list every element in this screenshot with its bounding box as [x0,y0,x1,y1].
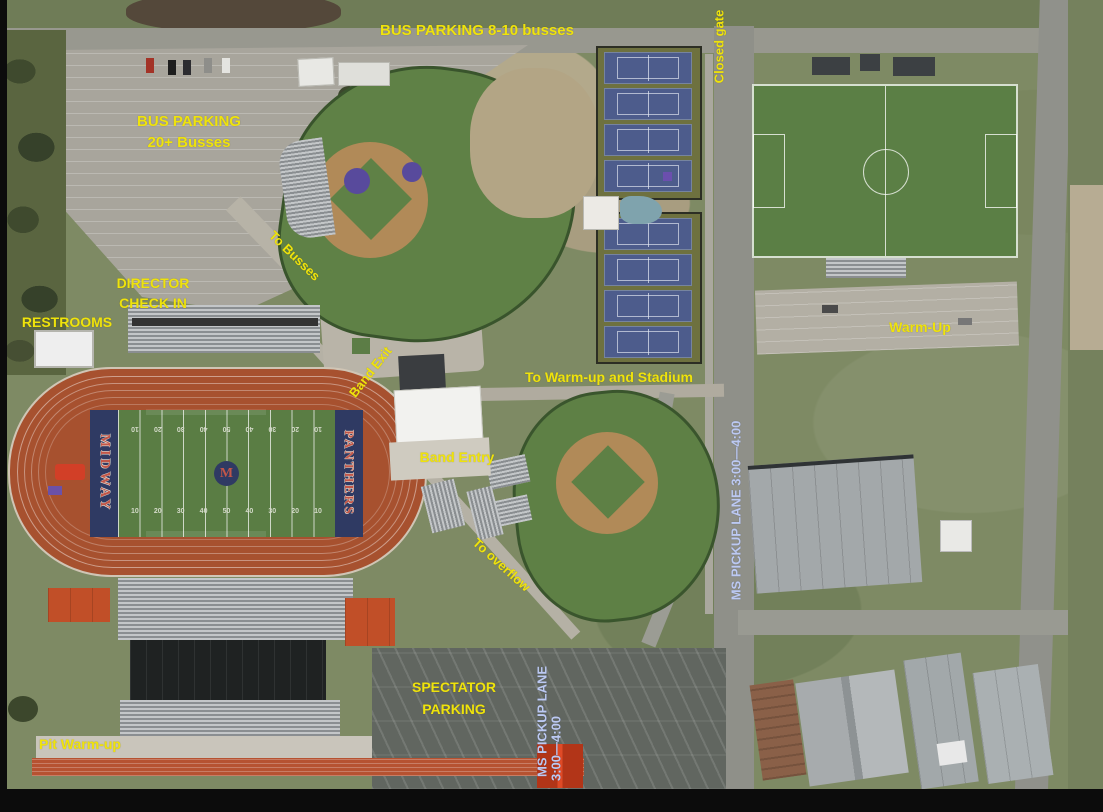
tennis-court [604,124,692,156]
dirt-patch-east [470,68,600,218]
photo-edge-left [0,0,7,812]
tennis-court [604,254,692,286]
endzone-text-visitor: PANTHERS [341,413,357,533]
label-bus-parking-lot-line1: BUS PARKING [108,111,270,132]
parked-car [183,60,191,75]
tennis-court [604,326,692,358]
tennis-court [604,52,692,84]
campus-aerial-map: MIDWAY PANTHERS 102030405040302010 10203… [0,0,1103,812]
purple-tarp [402,162,422,182]
fieldhouse-dark-building [398,354,446,390]
label-bus-parking-top: BUS PARKING 8-10 busses [380,22,560,39]
midfield-logo-letter: M [220,466,233,482]
label-director-check-in: DIRECTOR CHECK IN [78,273,228,313]
soccer-bleachers [826,258,906,278]
baseball-building [338,62,390,86]
orange-roof-building [345,598,395,646]
center-circle [863,149,909,195]
label-ms-pickup-lane-bottom-line2: 3:00—4:00 [550,703,565,793]
yard-numbers-top: 102030405040302010 [118,422,335,432]
soccer-field [752,84,1018,258]
label-spectator-line2: PARKING [384,698,524,720]
fieldhouse-white-building [394,386,484,444]
yard-numbers-bottom: 102030405040302010 [118,508,335,518]
label-ms-pickup-lane-right: MS PICKUP LANE 3:00—4:00 [730,420,745,600]
white-shed [940,520,972,552]
label-spectator-line1: SPECTATOR [384,676,524,698]
label-director-line2: CHECK IN [78,293,228,313]
orange-roof-building [48,588,110,622]
label-spectator-parking: SPECTATOR PARKING [384,676,524,720]
north-grandstand-roof [132,318,318,326]
tennis-court [604,160,692,192]
parked-car [168,60,176,75]
warehouse-building [903,653,979,790]
pit-warmup-track-strip [32,758,584,776]
label-restrooms: RESTROOMS [8,314,126,330]
endzone-text-home: MIDWAY [96,413,112,533]
equipment-purple [48,486,62,495]
south-grandstand-upper [118,578,353,640]
midfield-logo: M [214,461,239,486]
parked-car [146,58,154,73]
parked-car [204,58,212,73]
penalty-box-left [753,134,785,208]
parked-car [958,318,972,325]
tree [8,696,38,722]
shed [893,57,935,76]
tennis-court [604,88,692,120]
purple-tarp [344,168,370,194]
south-grandstand-lower [120,700,340,738]
shed [860,54,880,71]
label-director-line1: DIRECTOR [78,273,228,293]
label-closed-gate: Closed gate [713,0,728,92]
parked-car [222,58,230,73]
tennis-court [604,290,692,322]
gable-building [795,670,909,787]
label-to-warmup-stadium: To Warm-up and Stadium [524,369,694,385]
baseball-building [297,57,334,87]
label-pit-warm-up: Pit Warm-up [24,736,136,752]
east-bleachers [421,479,466,534]
road-bottom-right [738,610,1103,635]
warmup-parking-lot [755,281,1019,354]
shed [812,57,850,75]
label-warm-up: Warm-Up [882,319,958,335]
parked-car [822,305,838,313]
high-jump-mat [55,464,85,480]
south-grandstand-roof [130,640,326,702]
penalty-box-right [985,134,1017,208]
midfield-paint [146,409,266,415]
tennis-plaza [620,196,662,224]
midfield-paint [146,531,266,537]
right-grass-verge [1068,0,1103,812]
label-bus-parking-lot-line2: 20+ Busses [108,132,270,153]
plaza-grass-square [352,338,370,354]
white-annex [937,740,968,766]
restrooms-building [34,330,94,368]
label-band-entry: Band Entry [412,449,502,465]
label-bus-parking-lot: BUS PARKING 20+ Busses [108,111,270,153]
warehouse-large [748,454,923,593]
tennis-building [583,196,619,230]
purple-windscreen [663,172,672,181]
right-concrete-pad [1070,185,1103,350]
